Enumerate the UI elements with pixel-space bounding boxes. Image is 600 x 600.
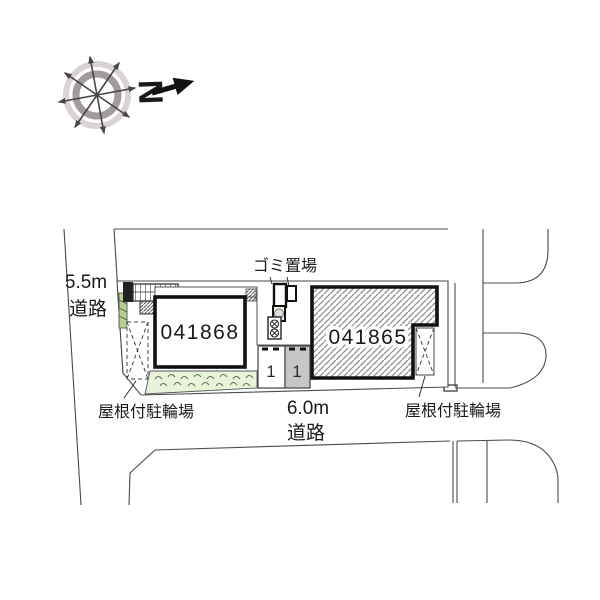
- parking-stall-2-number: 1: [292, 362, 301, 381]
- building-041868: 041868: [155, 287, 257, 367]
- southeast-corner-curve: [457, 440, 558, 503]
- east-corner-block: [455, 333, 546, 388]
- bike-parking-right-label: 屋根付駐輪場: [405, 402, 501, 420]
- garbage-bin-2-icon: [287, 286, 296, 301]
- west-road-type-label: 道路: [69, 298, 107, 320]
- site-plan-figure: N: [0, 0, 600, 600]
- bike-left-leader: [124, 381, 136, 398]
- south-road-width-label: 6.0m: [287, 398, 329, 419]
- stair-landing-icon: [123, 282, 133, 302]
- meter-box: [268, 317, 281, 339]
- west-road-width-label: 5.5m: [65, 272, 107, 293]
- bike-parking-left-label: 屋根付駐輪場: [98, 403, 194, 421]
- east-branch-north-corner: [483, 229, 548, 283]
- west-road-west-edge: [64, 229, 81, 505]
- service-unit-icon: [246, 289, 256, 301]
- compass-rose: N: [59, 57, 197, 133]
- compass-star-icon: [59, 57, 135, 133]
- covered-bike-parking-left: [127, 322, 148, 379]
- southwest-corner-cut: [129, 450, 155, 505]
- garbage-bin-1-icon: [274, 284, 286, 307]
- building-041868-label: 041868: [160, 321, 239, 344]
- building-041865: 041865: [312, 287, 437, 378]
- covered-bike-parking-right: [416, 328, 434, 375]
- building-041865-label: 041865: [328, 326, 407, 349]
- parking-stalls: 1 1: [258, 346, 310, 388]
- parking-stall-1-number: 1: [266, 362, 275, 381]
- garbage-area-label: ゴミ置場: [253, 256, 317, 275]
- south-road-type-label: 道路: [287, 422, 325, 444]
